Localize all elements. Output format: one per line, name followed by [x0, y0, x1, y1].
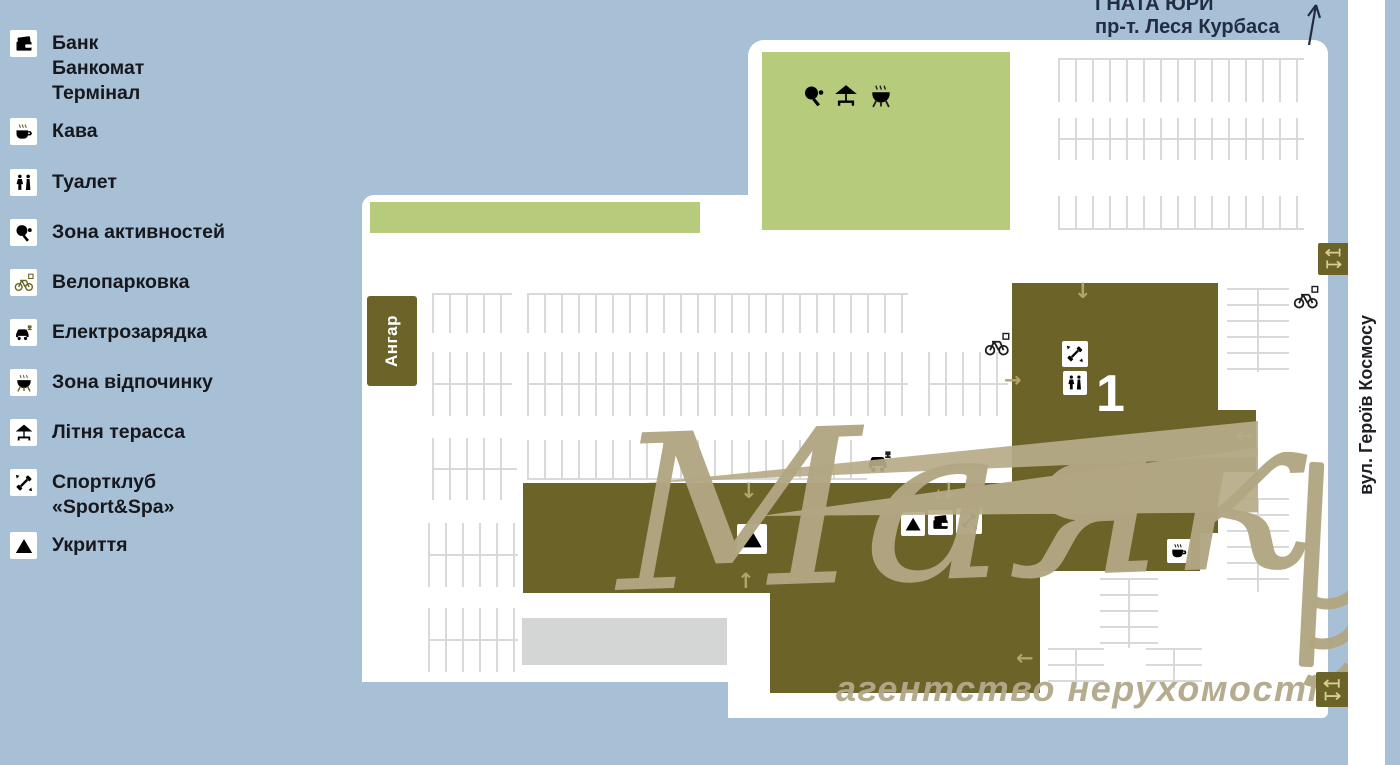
parking-row [1058, 58, 1304, 102]
legend-item-ev: Електрозарядка [10, 319, 340, 346]
table-tennis-icon [802, 84, 826, 108]
legend-item-coffee: Кава [10, 118, 340, 145]
parking-row [1058, 196, 1304, 230]
parking-row [527, 293, 908, 333]
bbq-grill-icon [10, 369, 37, 396]
legend-label: Банк Банкомат Термінал [52, 30, 144, 106]
entrance-gate-icon [1318, 243, 1349, 275]
parking-row [1227, 288, 1289, 372]
street-name-line1: ГНАТА ЮРИ [1095, 0, 1280, 16]
parking-row [432, 352, 512, 416]
bike-parking-icon [10, 269, 37, 296]
legend-item-bank: Банк Банкомат Термінал [10, 30, 340, 106]
entrance-gate-icon [1316, 672, 1349, 707]
watermark-tagline: агентство нерухомості [836, 668, 1319, 710]
legend-label: Зона активностей [52, 219, 225, 245]
legend-item-bike: Велопарковка [10, 269, 340, 296]
parking-row [1058, 118, 1304, 160]
legend-label: Туалет [52, 169, 117, 195]
parking-row [428, 523, 518, 587]
legend-item-shelter: Укриття [10, 532, 340, 559]
arrow-left-icon: ← [1016, 648, 1034, 669]
legend: Банк Банкомат Термінал Кава Туалет Зона … [10, 30, 340, 582]
legend-label: Укриття [52, 532, 128, 558]
hangar-building: Ангар [367, 296, 417, 386]
legend-label: Спортклуб «Sport&Spa» [52, 469, 174, 520]
legend-item-terrace: Літня терасса [10, 419, 340, 446]
legend-label: Велопарковка [52, 269, 190, 295]
north-arrow-icon [1294, 0, 1332, 46]
bbq-grill-icon [868, 83, 894, 109]
arrow-down-icon: ↓ [1074, 281, 1092, 302]
table-tennis-icon [10, 219, 37, 246]
legend-item-wc: Туалет [10, 169, 340, 196]
wc-icon [10, 169, 37, 196]
bike-parking-icon [1293, 285, 1319, 311]
legend-label: Електрозарядка [52, 319, 207, 345]
bike-parking-icon [984, 332, 1010, 358]
legend-label: Літня терасса [52, 419, 185, 445]
top-street-header: ГНАТА ЮРИ пр-т. Леся Курбаса [1095, 0, 1280, 39]
right-street-name: вул. Героїв Космосу [1356, 270, 1377, 495]
dumbbell-icon [10, 469, 37, 496]
site-map-page: Ангар 1 ↓ → ← ↓ ↓ ↑ ↓ ← ГНАТА ЮРИ пр-т. … [0, 0, 1400, 765]
parking-row [432, 293, 512, 333]
parking-row [428, 608, 518, 672]
legend-label: Зона відпочинку [52, 369, 213, 395]
terrace-umbrella-icon [10, 419, 37, 446]
right-street-strip: вул. Героїв Космосу [1348, 0, 1385, 765]
legend-item-rest: Зона відпочинку [10, 369, 340, 396]
street-name-line2: пр-т. Леся Курбаса [1095, 16, 1280, 39]
watermark-brand: Маяк [612, 384, 1312, 623]
terrace-umbrella-icon [833, 83, 859, 109]
legend-label: Кава [52, 118, 98, 144]
shelter-triangle-icon [10, 532, 37, 559]
ev-charging-icon [10, 319, 37, 346]
green-strip [370, 202, 700, 233]
coffee-icon [10, 118, 37, 145]
legend-item-sport: Спортклуб «Sport&Spa» [10, 469, 340, 520]
map-bottom-step [350, 682, 728, 727]
bank-card-icon [10, 30, 37, 57]
sport-club-icon [1062, 341, 1088, 367]
hangar-label: Ангар [382, 315, 402, 367]
parking-row [432, 438, 517, 500]
legend-item-activity: Зона активностей [10, 219, 340, 246]
